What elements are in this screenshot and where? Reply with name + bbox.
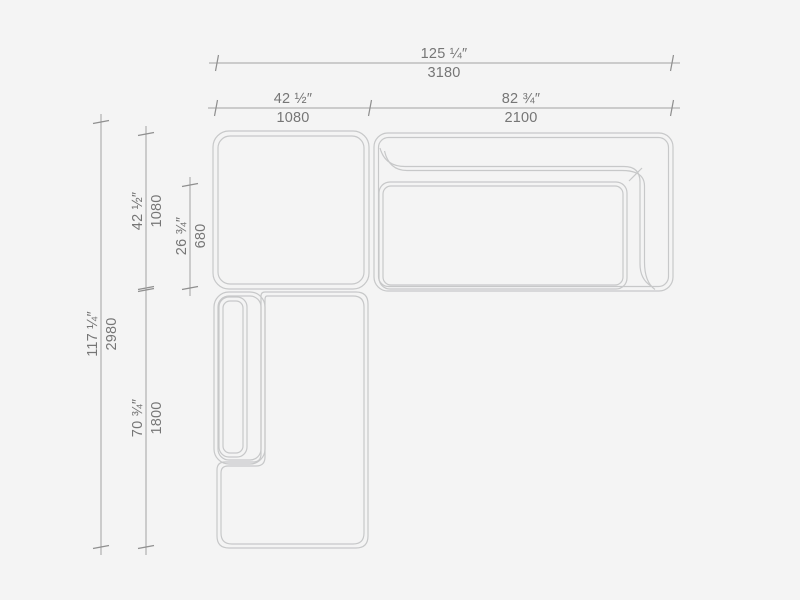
dim-overall-width: 125 ¼″ 3180 bbox=[209, 46, 680, 81]
dim-module-widths: 42 ½″ 1080 82 ¾″ 2100 bbox=[208, 91, 680, 126]
sofa-outline-outer bbox=[374, 133, 673, 291]
dim-label-mm: 680 bbox=[193, 224, 209, 249]
sofa-outline-inner bbox=[379, 138, 669, 287]
ottoman-module bbox=[213, 131, 369, 289]
chaise-seat-outline-outer bbox=[217, 292, 368, 548]
dim-label-inches: 42 ½″ bbox=[130, 192, 146, 230]
chaise-back-cushion-inner bbox=[223, 301, 243, 453]
dim-seat-depth: 26 ¾″ 680 bbox=[174, 177, 209, 296]
dim-label-mm: 2100 bbox=[504, 110, 537, 126]
dim-label-mm: 1080 bbox=[276, 110, 309, 126]
dim-overall-depth: 117 ¼″ 2980 bbox=[85, 114, 120, 555]
chaise-backrest-inner bbox=[218, 296, 261, 460]
dim-label-inches: 26 ¾″ bbox=[174, 217, 190, 255]
chaise-module bbox=[214, 292, 368, 548]
dim-chaise-length: 70 ¾″ 1800 bbox=[130, 282, 165, 555]
chaise-backrest-outer bbox=[214, 292, 265, 464]
dim-label-mm: 1080 bbox=[149, 194, 165, 227]
dim-label-inches: 125 ¼″ bbox=[421, 46, 468, 62]
dim-ottoman-depth: 42 ½″ 1080 bbox=[130, 126, 165, 296]
dim-label-mm: 1800 bbox=[149, 401, 165, 434]
sofa-backrest-line-outer bbox=[380, 148, 651, 286]
sofa-backrest-line-inner bbox=[385, 151, 656, 290]
sofa-seat-cushion-outer bbox=[379, 182, 627, 289]
dim-label-mm: 2980 bbox=[104, 317, 120, 350]
furniture-plan bbox=[213, 131, 673, 548]
sofa-dimension-diagram: 125 ¼″ 3180 42 ½″ 1080 82 ¾″ 2100 117 ¼″… bbox=[0, 0, 800, 600]
technical-drawing-canvas: 125 ¼″ 3180 42 ½″ 1080 82 ¾″ 2100 117 ¼″… bbox=[0, 0, 800, 600]
dim-label-inches: 82 ¾″ bbox=[502, 91, 540, 107]
dimension-annotations: 125 ¼″ 3180 42 ½″ 1080 82 ¾″ 2100 117 ¼″… bbox=[85, 46, 680, 555]
ottoman-outline-outer bbox=[213, 131, 369, 289]
dim-label-inches: 70 ¾″ bbox=[130, 399, 146, 437]
sofa-seat-cushion-inner bbox=[383, 186, 623, 285]
dim-label-inches: 42 ½″ bbox=[274, 91, 312, 107]
dim-label-mm: 3180 bbox=[427, 65, 460, 81]
dim-label-inches: 117 ¼″ bbox=[85, 311, 101, 357]
sofa-module bbox=[374, 133, 673, 291]
ottoman-outline-inner bbox=[218, 136, 364, 284]
